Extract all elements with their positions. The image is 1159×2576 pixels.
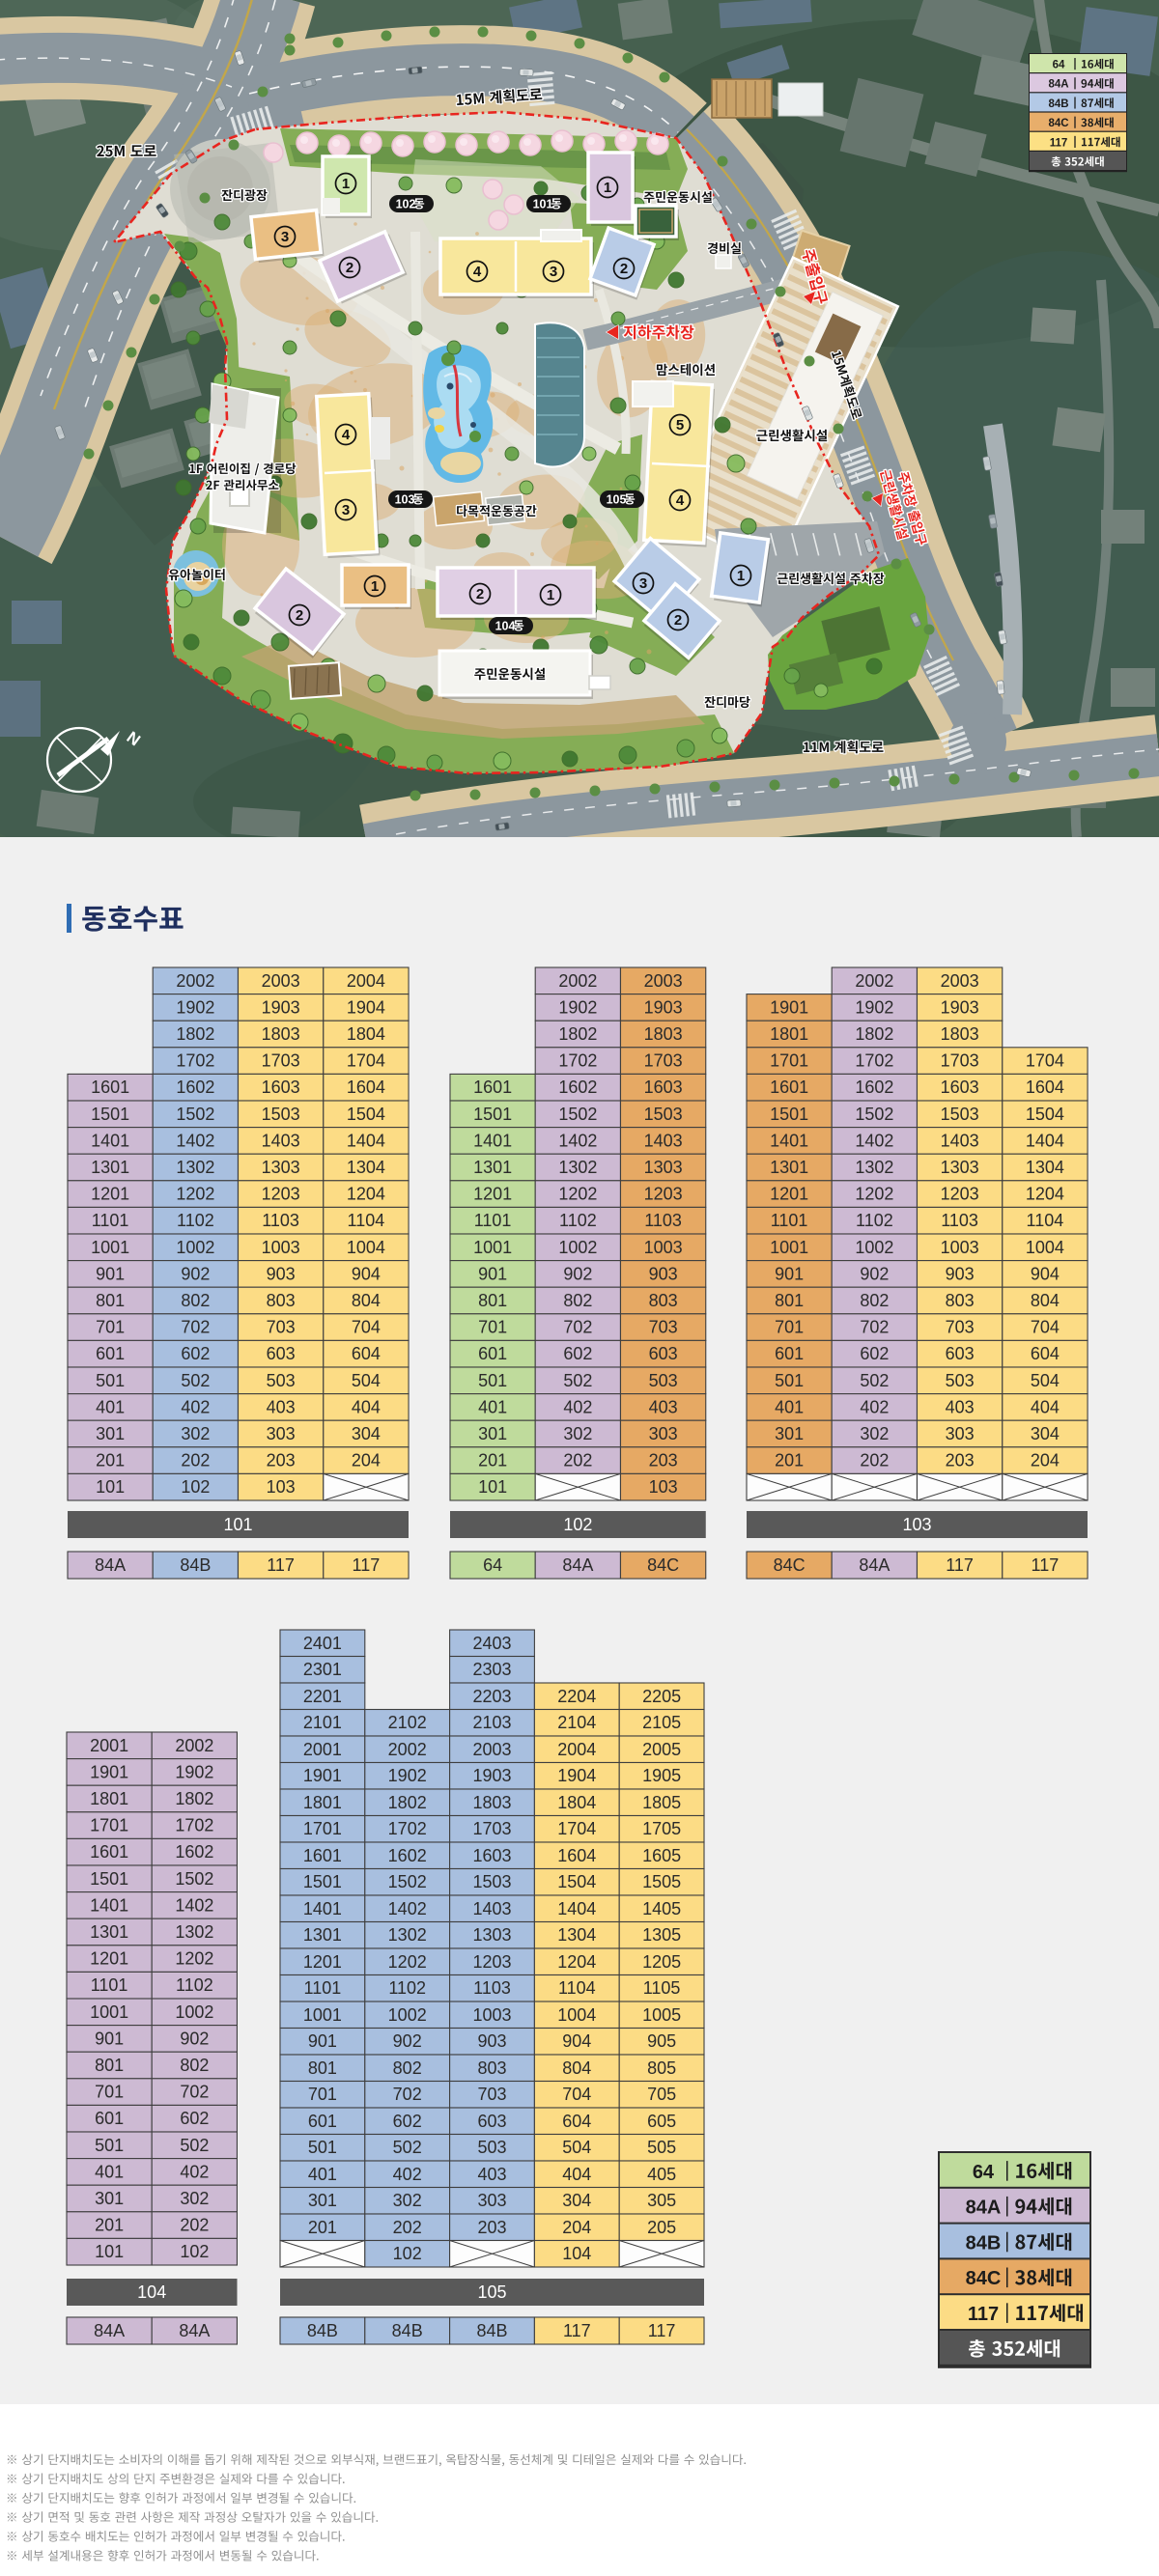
svg-text:801: 801	[775, 1291, 804, 1310]
svg-text:1001: 1001	[90, 2002, 128, 2022]
svg-text:1004: 1004	[557, 2005, 596, 2025]
svg-text:2001: 2001	[303, 1740, 342, 1759]
svg-text:1303: 1303	[472, 1925, 511, 1945]
svg-text:1302: 1302	[388, 1925, 427, 1945]
svg-text:401: 401	[96, 1397, 125, 1416]
svg-text:202: 202	[563, 1451, 592, 1470]
svg-text:1601: 1601	[770, 1078, 808, 1097]
svg-text:1005: 1005	[642, 2005, 681, 2025]
svg-text:1702: 1702	[388, 1819, 427, 1838]
svg-text:1204: 1204	[1026, 1185, 1064, 1204]
svg-text:2002: 2002	[388, 1740, 427, 1759]
svg-text:2004: 2004	[557, 1740, 596, 1759]
svg-text:901: 901	[95, 2029, 124, 2048]
svg-text:1404: 1404	[1026, 1131, 1064, 1150]
svg-text:4: 4	[676, 492, 685, 509]
svg-text:3: 3	[639, 575, 647, 592]
svg-text:701: 701	[95, 2083, 124, 2102]
svg-text:403: 403	[477, 2165, 506, 2184]
svg-text:117: 117	[648, 2321, 676, 2340]
svg-text:701: 701	[775, 1318, 804, 1337]
svg-text:1102: 1102	[388, 1978, 426, 1998]
svg-text:1302: 1302	[855, 1158, 893, 1177]
svg-text:502: 502	[180, 2136, 209, 2155]
svg-text:604: 604	[1031, 1344, 1060, 1363]
svg-text:1103: 1103	[473, 1978, 511, 1998]
svg-text:704: 704	[1031, 1318, 1060, 1337]
svg-text:84C: 84C	[1048, 118, 1068, 129]
svg-text:501: 501	[308, 2138, 337, 2157]
svg-text:1104: 1104	[348, 1211, 385, 1230]
svg-text:901: 901	[478, 1264, 507, 1283]
svg-text:201: 201	[96, 1451, 125, 1470]
svg-text:401: 401	[478, 1397, 507, 1416]
svg-text:303: 303	[267, 1424, 296, 1443]
svg-text:84A: 84A	[859, 1555, 890, 1575]
svg-text:1501: 1501	[90, 1869, 128, 1889]
svg-text:101: 101	[223, 1515, 252, 1534]
svg-text:1203: 1203	[644, 1185, 683, 1204]
svg-text:84B: 84B	[966, 2232, 1002, 2254]
svg-text:902: 902	[180, 2029, 209, 2048]
svg-text:1504: 1504	[347, 1105, 385, 1124]
svg-text:2204: 2204	[557, 1687, 596, 1706]
svg-text:203: 203	[649, 1451, 678, 1470]
svg-text:205: 205	[647, 2218, 676, 2237]
svg-text:1203: 1203	[472, 1952, 511, 1972]
svg-text:117: 117	[1050, 137, 1068, 149]
svg-text:703: 703	[946, 1318, 975, 1337]
svg-text:502: 502	[393, 2138, 422, 2157]
svg-text:802: 802	[393, 2058, 422, 2078]
svg-text:117: 117	[946, 1555, 974, 1575]
svg-text:1202: 1202	[558, 1185, 597, 1204]
svg-text:1903: 1903	[941, 997, 979, 1017]
svg-text:1803: 1803	[262, 1024, 300, 1044]
svg-text:603: 603	[267, 1344, 296, 1363]
svg-text:404: 404	[562, 2165, 591, 2184]
svg-text:1101: 1101	[771, 1211, 808, 1230]
svg-text:502: 502	[563, 1371, 592, 1390]
svg-text:202: 202	[860, 1451, 889, 1470]
svg-text:1902: 1902	[855, 997, 893, 1017]
svg-text:1602: 1602	[855, 1078, 893, 1097]
svg-text:201: 201	[775, 1451, 804, 1470]
svg-text:1301: 1301	[473, 1158, 512, 1177]
svg-text:2: 2	[296, 607, 303, 624]
svg-text:1603: 1603	[472, 1846, 511, 1865]
svg-text:1103: 1103	[262, 1211, 299, 1230]
svg-text:303: 303	[946, 1424, 975, 1443]
svg-text:84A: 84A	[966, 2198, 1002, 2219]
svg-text:204: 204	[562, 2218, 591, 2237]
svg-text:1602: 1602	[388, 1846, 427, 1865]
svg-text:1401: 1401	[90, 1895, 128, 1915]
svg-text:301: 301	[478, 1424, 507, 1443]
svg-text:501: 501	[478, 1371, 507, 1390]
svg-text:601: 601	[95, 2109, 124, 2128]
svg-text:403: 403	[267, 1397, 296, 1416]
svg-text:1101: 1101	[91, 1975, 128, 1995]
svg-text:701: 701	[308, 2085, 337, 2104]
svg-text:1503: 1503	[644, 1105, 683, 1124]
svg-text:703: 703	[649, 1318, 678, 1337]
svg-text:803: 803	[267, 1291, 296, 1310]
svg-text:503: 503	[946, 1371, 975, 1390]
svg-text:302: 302	[563, 1424, 592, 1443]
svg-text:902: 902	[393, 2031, 422, 2051]
svg-text:1802: 1802	[855, 1024, 893, 1044]
svg-text:803: 803	[946, 1291, 975, 1310]
svg-text:1102: 1102	[176, 1975, 213, 1995]
svg-text:1: 1	[547, 587, 554, 603]
svg-text:101: 101	[95, 2242, 124, 2261]
svg-text:4: 4	[473, 264, 482, 280]
svg-text:1703: 1703	[941, 1051, 979, 1071]
svg-text:1501: 1501	[303, 1872, 342, 1891]
svg-text:1003: 1003	[262, 1238, 300, 1257]
svg-text:203: 203	[946, 1451, 975, 1470]
svg-text:1702: 1702	[855, 1051, 893, 1071]
svg-text:1901: 1901	[90, 1762, 128, 1781]
svg-text:402: 402	[860, 1397, 889, 1416]
svg-text:201: 201	[95, 2216, 124, 2235]
svg-text:1102: 1102	[559, 1211, 597, 1230]
svg-text:1201: 1201	[303, 1952, 342, 1972]
svg-text:2301: 2301	[303, 1660, 342, 1679]
svg-text:1701: 1701	[770, 1051, 808, 1071]
svg-text:201: 201	[308, 2218, 337, 2237]
svg-text:1002: 1002	[855, 1238, 893, 1257]
svg-text:1201: 1201	[90, 1949, 128, 1969]
svg-text:1901: 1901	[770, 997, 808, 1017]
svg-text:802: 802	[181, 1291, 210, 1310]
svg-text:84A: 84A	[179, 2321, 210, 2340]
svg-text:804: 804	[1031, 1291, 1060, 1310]
svg-text:702: 702	[181, 1318, 210, 1337]
svg-text:604: 604	[562, 2112, 591, 2131]
svg-text:1401: 1401	[91, 1131, 129, 1150]
svg-text:1801: 1801	[90, 1789, 128, 1808]
svg-text:2103: 2103	[472, 1713, 511, 1732]
svg-text:1701: 1701	[303, 1819, 342, 1838]
svg-text:504: 504	[352, 1371, 381, 1390]
svg-text:1202: 1202	[388, 1952, 427, 1972]
svg-text:1004: 1004	[347, 1238, 385, 1257]
svg-text:2303: 2303	[472, 1660, 511, 1679]
svg-text:1102: 1102	[177, 1211, 214, 1230]
svg-text:1301: 1301	[91, 1158, 129, 1177]
svg-text:903: 903	[649, 1264, 678, 1283]
svg-text:1205: 1205	[642, 1952, 681, 1972]
svg-text:84A: 84A	[94, 2321, 125, 2340]
svg-text:3: 3	[342, 502, 350, 518]
svg-text:603: 603	[946, 1344, 975, 1363]
svg-text:1003: 1003	[941, 1238, 979, 1257]
svg-text:304: 304	[562, 2191, 591, 2210]
svg-text:1802: 1802	[558, 1024, 597, 1044]
svg-text:904: 904	[352, 1264, 381, 1283]
svg-text:2005: 2005	[642, 1740, 681, 1759]
svg-text:101: 101	[533, 197, 553, 210]
svg-text:1601: 1601	[91, 1078, 129, 1097]
svg-text:1303: 1303	[644, 1158, 683, 1177]
svg-text:1503: 1503	[941, 1105, 979, 1124]
svg-text:1601: 1601	[303, 1846, 342, 1865]
svg-text:1202: 1202	[175, 1949, 213, 1969]
svg-text:102: 102	[393, 2244, 422, 2263]
svg-text:1902: 1902	[176, 997, 214, 1017]
svg-text:1103: 1103	[941, 1211, 978, 1230]
svg-text:605: 605	[647, 2112, 676, 2131]
svg-text:1002: 1002	[175, 2002, 213, 2022]
svg-text:1402: 1402	[388, 1899, 427, 1918]
svg-text:202: 202	[393, 2218, 422, 2237]
svg-text:84B: 84B	[392, 2321, 423, 2340]
svg-text:1301: 1301	[90, 1922, 128, 1942]
svg-text:202: 202	[181, 1451, 210, 1470]
svg-text:2101: 2101	[303, 1713, 342, 1732]
svg-text:901: 901	[775, 1264, 804, 1283]
svg-text:1402: 1402	[558, 1131, 597, 1150]
svg-text:603: 603	[649, 1344, 678, 1363]
svg-text:103: 103	[902, 1515, 931, 1534]
svg-text:1502: 1502	[558, 1105, 597, 1124]
svg-text:601: 601	[96, 1344, 125, 1363]
svg-text:117: 117	[353, 1555, 381, 1575]
svg-text:1604: 1604	[347, 1078, 385, 1097]
svg-text:1802: 1802	[175, 1789, 213, 1808]
svg-text:502: 502	[181, 1371, 210, 1390]
svg-text:1403: 1403	[941, 1131, 979, 1150]
svg-text:84C: 84C	[966, 2268, 1002, 2289]
svg-text:1102: 1102	[856, 1211, 893, 1230]
svg-text:1401: 1401	[473, 1131, 512, 1150]
svg-text:302: 302	[180, 2189, 209, 2208]
svg-text:604: 604	[352, 1344, 381, 1363]
svg-text:705: 705	[647, 2085, 676, 2104]
svg-text:1504: 1504	[1026, 1105, 1064, 1124]
svg-text:704: 704	[562, 2085, 591, 2104]
svg-text:1604: 1604	[1026, 1078, 1064, 1097]
svg-text:203: 203	[477, 2218, 506, 2237]
svg-text:105: 105	[607, 492, 627, 506]
svg-text:702: 702	[180, 2083, 209, 2102]
svg-text:1604: 1604	[557, 1846, 596, 1865]
svg-text:1104: 1104	[558, 1978, 596, 1998]
svg-text:1503: 1503	[262, 1105, 300, 1124]
svg-text:602: 602	[180, 2109, 209, 2128]
svg-text:301: 301	[96, 1424, 125, 1443]
svg-text:1302: 1302	[558, 1158, 597, 1177]
svg-text:402: 402	[180, 2162, 209, 2181]
svg-text:601: 601	[478, 1344, 507, 1363]
svg-text:1302: 1302	[175, 1922, 213, 1942]
svg-text:84B: 84B	[476, 2321, 507, 2340]
svg-text:1001: 1001	[91, 1238, 129, 1257]
svg-text:1002: 1002	[388, 2005, 427, 2025]
svg-text:1702: 1702	[558, 1051, 597, 1071]
svg-text:2105: 2105	[642, 1713, 681, 1732]
svg-text:1603: 1603	[644, 1078, 683, 1097]
svg-text:2001: 2001	[90, 1736, 128, 1755]
svg-text:204: 204	[1031, 1451, 1060, 1470]
svg-text:1105: 1105	[643, 1978, 681, 1998]
svg-text:801: 801	[308, 2058, 337, 2078]
svg-text:702: 702	[563, 1318, 592, 1337]
svg-text:603: 603	[477, 2112, 506, 2131]
svg-text:2002: 2002	[176, 971, 214, 991]
svg-text:4: 4	[342, 427, 351, 443]
svg-text:1502: 1502	[855, 1105, 893, 1124]
svg-text:1801: 1801	[303, 1793, 342, 1812]
svg-text:2002: 2002	[855, 971, 893, 991]
svg-text:1605: 1605	[642, 1846, 681, 1865]
svg-text:1: 1	[737, 568, 745, 584]
svg-text:1305: 1305	[642, 1925, 681, 1945]
svg-text:602: 602	[393, 2112, 422, 2131]
svg-text:1403: 1403	[472, 1899, 511, 1918]
svg-text:304: 304	[1031, 1424, 1060, 1443]
svg-text:1802: 1802	[176, 1024, 214, 1044]
svg-text:1402: 1402	[176, 1131, 214, 1150]
svg-text:202: 202	[180, 2216, 209, 2235]
svg-text:501: 501	[95, 2136, 124, 2155]
svg-text:802: 802	[180, 2056, 209, 2075]
svg-text:904: 904	[1031, 1264, 1060, 1283]
svg-text:101: 101	[478, 1477, 507, 1497]
svg-text:803: 803	[477, 2058, 506, 2078]
svg-text:84A: 84A	[1048, 79, 1068, 91]
svg-text:2201: 2201	[303, 1687, 342, 1706]
svg-text:1903: 1903	[262, 997, 300, 1017]
svg-text:84C: 84C	[647, 1555, 679, 1575]
svg-text:1002: 1002	[176, 1238, 214, 1257]
svg-text:803: 803	[649, 1291, 678, 1310]
svg-text:1001: 1001	[770, 1238, 808, 1257]
svg-text:1304: 1304	[557, 1925, 596, 1945]
svg-text:1303: 1303	[262, 1158, 300, 1177]
svg-text:1505: 1505	[642, 1872, 681, 1891]
svg-text:1204: 1204	[557, 1952, 596, 1972]
svg-text:401: 401	[775, 1397, 804, 1416]
svg-text:1301: 1301	[770, 1158, 808, 1177]
svg-text:1003: 1003	[472, 2005, 511, 2025]
svg-text:1103: 1103	[644, 1211, 682, 1230]
svg-text:2: 2	[346, 260, 353, 276]
svg-text:1404: 1404	[557, 1899, 596, 1918]
svg-text:1: 1	[371, 578, 379, 595]
svg-text:84C: 84C	[774, 1555, 806, 1575]
svg-text:903: 903	[477, 2031, 506, 2051]
svg-text:302: 302	[181, 1424, 210, 1443]
svg-text:2004: 2004	[347, 971, 385, 991]
svg-text:1403: 1403	[644, 1131, 683, 1150]
svg-text:902: 902	[860, 1264, 889, 1283]
svg-text:1701: 1701	[90, 1816, 128, 1835]
svg-text:1202: 1202	[176, 1185, 214, 1204]
svg-text:1202: 1202	[855, 1185, 893, 1204]
svg-text:201: 201	[478, 1451, 507, 1470]
svg-text:64: 64	[973, 2162, 995, 2183]
svg-text:2003: 2003	[472, 1740, 511, 1759]
svg-text:403: 403	[649, 1397, 678, 1416]
svg-text:102: 102	[181, 1477, 210, 1497]
svg-text:503: 503	[267, 1371, 296, 1390]
svg-text:501: 501	[96, 1371, 125, 1390]
svg-text:1101: 1101	[474, 1211, 512, 1230]
svg-text:502: 502	[860, 1371, 889, 1390]
svg-text:1804: 1804	[347, 1024, 385, 1044]
svg-text:1201: 1201	[770, 1185, 808, 1204]
svg-text:1504: 1504	[557, 1872, 596, 1891]
svg-text:2403: 2403	[472, 1634, 511, 1653]
svg-text:1801: 1801	[770, 1024, 808, 1044]
svg-text:301: 301	[775, 1424, 804, 1443]
svg-text:1: 1	[604, 180, 611, 196]
svg-text:1805: 1805	[642, 1793, 681, 1812]
svg-text:1204: 1204	[347, 1185, 385, 1204]
svg-text:2401: 2401	[303, 1634, 342, 1653]
svg-text:1603: 1603	[941, 1078, 979, 1097]
svg-text:3: 3	[550, 264, 557, 280]
svg-text:84B: 84B	[180, 1555, 211, 1575]
svg-text:703: 703	[267, 1318, 296, 1337]
svg-text:304: 304	[352, 1424, 381, 1443]
svg-text:1804: 1804	[557, 1793, 596, 1812]
svg-text:2003: 2003	[644, 971, 683, 991]
svg-text:1502: 1502	[176, 1105, 214, 1124]
svg-text:2: 2	[674, 612, 682, 629]
svg-text:1703: 1703	[644, 1051, 683, 1071]
svg-text:303: 303	[477, 2191, 506, 2210]
svg-text:1502: 1502	[388, 1872, 427, 1891]
svg-text:1602: 1602	[176, 1078, 214, 1097]
svg-text:303: 303	[649, 1424, 678, 1443]
svg-text:1704: 1704	[557, 1819, 596, 1838]
svg-text:117: 117	[563, 2321, 591, 2340]
svg-text:2: 2	[476, 586, 484, 602]
svg-text:1003: 1003	[644, 1238, 683, 1257]
svg-text:1101: 1101	[92, 1211, 129, 1230]
svg-text:117: 117	[1032, 1555, 1060, 1575]
svg-text:5: 5	[676, 417, 684, 434]
svg-text:1001: 1001	[303, 2005, 342, 2025]
svg-text:1602: 1602	[558, 1078, 597, 1097]
svg-text:104: 104	[137, 2282, 166, 2302]
svg-text:602: 602	[181, 1344, 210, 1363]
svg-text:2203: 2203	[472, 1687, 511, 1706]
svg-text:903: 903	[267, 1264, 296, 1283]
svg-text:1803: 1803	[941, 1024, 979, 1044]
svg-text:401: 401	[95, 2162, 124, 2181]
svg-text:1405: 1405	[642, 1899, 681, 1918]
svg-text:1501: 1501	[770, 1105, 808, 1124]
svg-text:103: 103	[649, 1477, 678, 1497]
svg-text:64: 64	[1053, 60, 1065, 71]
svg-text:1304: 1304	[1026, 1158, 1064, 1177]
svg-text:302: 302	[393, 2191, 422, 2210]
svg-text:2205: 2205	[642, 1687, 681, 1706]
svg-text:1702: 1702	[175, 1816, 213, 1835]
svg-text:1601: 1601	[473, 1078, 512, 1097]
svg-text:1302: 1302	[176, 1158, 214, 1177]
svg-text:1002: 1002	[558, 1238, 597, 1257]
svg-text:1304: 1304	[347, 1158, 385, 1177]
svg-text:902: 902	[563, 1264, 592, 1283]
svg-text:403: 403	[946, 1397, 975, 1416]
svg-text:1603: 1603	[262, 1078, 300, 1097]
